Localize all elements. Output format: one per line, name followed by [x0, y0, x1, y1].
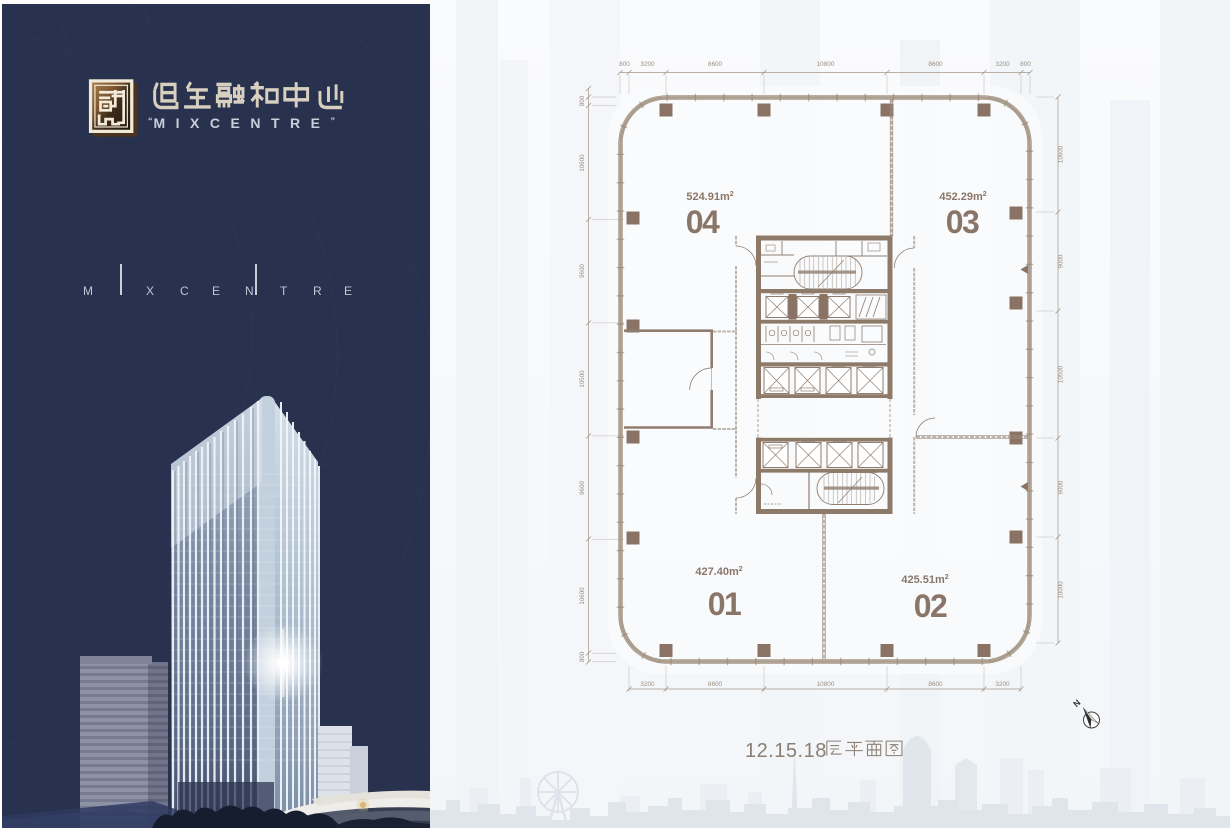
svg-text:01: 01 [708, 586, 741, 622]
svg-text:9600: 9600 [579, 481, 586, 495]
svg-text:10800: 10800 [817, 61, 835, 68]
svg-text:N: N [1071, 697, 1082, 709]
svg-text:9000: 9000 [1058, 480, 1065, 494]
svg-text:3200: 3200 [640, 681, 655, 688]
svg-text:12.15.18: 12.15.18 [745, 740, 827, 762]
svg-text:800: 800 [619, 61, 630, 68]
svg-text:10600: 10600 [1058, 145, 1065, 163]
svg-text:8600: 8600 [928, 681, 943, 688]
svg-text:524.91m2: 524.91m2 [686, 191, 733, 203]
svg-text:10600: 10600 [579, 154, 586, 172]
svg-text:8600: 8600 [708, 681, 723, 688]
svg-text:10600: 10600 [579, 587, 586, 605]
svg-text:800: 800 [579, 95, 586, 106]
svg-text:425.51m2: 425.51m2 [901, 574, 948, 586]
svg-text:9000: 9000 [1058, 254, 1065, 268]
svg-text:10500: 10500 [1058, 365, 1065, 383]
svg-text:427.40m2: 427.40m2 [695, 566, 742, 578]
svg-text:3200: 3200 [995, 681, 1010, 688]
svg-text:800: 800 [579, 651, 586, 662]
svg-text:04: 04 [686, 204, 720, 240]
svg-text:10500: 10500 [579, 370, 586, 388]
svg-text:452.29m2: 452.29m2 [939, 191, 986, 203]
svg-text:3200: 3200 [640, 61, 655, 68]
svg-text:8600: 8600 [708, 61, 723, 68]
svg-text:800: 800 [1020, 61, 1031, 68]
svg-text:9600: 9600 [579, 264, 586, 278]
svg-text:8600: 8600 [928, 61, 943, 68]
svg-text:10000: 10000 [1058, 581, 1065, 599]
svg-text:02: 02 [914, 588, 947, 624]
svg-text:10800: 10800 [817, 681, 835, 688]
svg-text:03: 03 [946, 204, 979, 240]
svg-text:3200: 3200 [995, 61, 1010, 68]
